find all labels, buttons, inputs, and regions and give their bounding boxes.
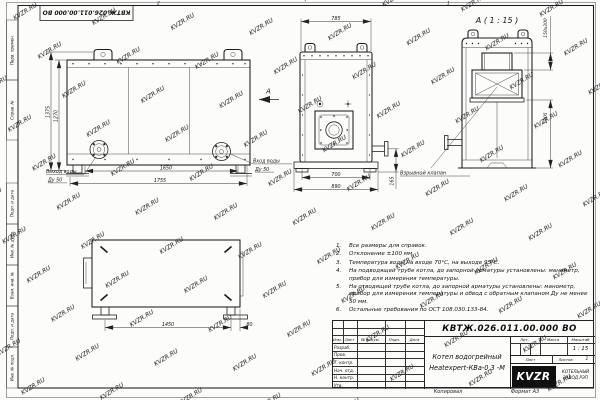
row-label-tkontr: Т. контр.	[334, 360, 353, 365]
note-number: 2.	[334, 251, 349, 258]
signature-table: Изм. Лист № докум. Подп. Дата Разраб. Пр…	[333, 321, 425, 389]
company-name: КОТЕЛЬНЫЙ ЗАВОД РЭП	[558, 369, 594, 381]
note-item: 6. Остальные требования по ОСТ 108.030.1…	[334, 307, 588, 314]
scale-value: 1 : 15	[567, 343, 595, 355]
margin-col-podp-data-1: Подп. и дата	[9, 189, 14, 217]
col-header-data: Дата	[405, 335, 425, 343]
scale-label: Масштаб	[567, 336, 595, 343]
margin-col-inv-dubl: Инв. № дубл.	[9, 231, 14, 258]
top-stamp-text: КВТЖ.026.011.00.000 ВО	[43, 8, 131, 15]
note-number: 3.	[334, 260, 349, 267]
note-text: Все размеры для справок.	[349, 243, 427, 250]
sheets-value: 1	[580, 355, 595, 363]
margin-col-vzam-inv: Взам. инв. №	[9, 272, 14, 299]
dim-side-width-top: 785	[331, 16, 340, 22]
margin-col-perv-primen: Перв. примен.	[9, 35, 14, 65]
mass-label: Масса	[540, 336, 567, 343]
row-label-utv: Утв.	[334, 383, 343, 388]
row-label-nachotd: Нач. отд.	[334, 368, 354, 373]
note-number: 1.	[334, 243, 349, 250]
dim-front-width-body: 1650	[160, 166, 172, 172]
company-name-line2: ЗАВОД РЭП	[558, 375, 594, 381]
note-number: 4.	[334, 268, 349, 283]
notes-list: 1. Все размеры для справок. 2. Отклонени…	[334, 243, 588, 315]
dim-front-height-total: 1375	[46, 106, 52, 118]
dim-side-width-total: 890	[331, 184, 340, 190]
note-text: Температура воды на входе 70°С, на выход…	[349, 260, 500, 267]
note-item: 3. Температура воды на входе 70°С, на вы…	[334, 260, 588, 267]
note-text: На подводящей трубе котла, до запорной а…	[349, 268, 588, 283]
zone-digit-right: 1	[447, 1, 450, 7]
doc-number: КВТЖ.026.011.00.000 ВО	[425, 321, 595, 337]
dim-detail-valve: 150х300	[543, 18, 549, 38]
margin-col-podp-data-2: Подп. и дата	[9, 312, 14, 340]
note-item: 1. Все размеры для справок.	[334, 243, 588, 250]
zone-digit-left: 2	[157, 1, 160, 7]
kvzr-logo: KVZR	[512, 366, 556, 387]
dim-front-height-body: 1270	[54, 110, 60, 122]
explosion-valve-callout: Взрывной клапан	[400, 171, 447, 177]
copied-label: Копировал	[418, 389, 478, 395]
col-header-doc: № докум.	[357, 335, 385, 343]
dim-top-length: 1450	[162, 322, 174, 328]
margin-col-inv-podl: Инв. № подл.	[9, 354, 14, 382]
dim-side-width-base: 700	[331, 172, 340, 178]
col-header-list: Лист	[343, 335, 357, 343]
title-block: Изм. Лист № докум. Подп. Дата Разраб. Пр…	[332, 320, 594, 388]
note-text: На отводящей трубе котла, до запорной ар…	[349, 284, 588, 306]
dim-top-offset: 80	[247, 322, 253, 328]
outlet-label-line1: Выход воды	[46, 169, 77, 175]
col-header-podp: Подп.	[385, 335, 405, 343]
note-number: 5.	[334, 284, 349, 306]
note-text: Отклонение ±100 мм.	[349, 251, 414, 258]
row-label-nkontr: Н. контр.	[334, 375, 354, 380]
note-number: 6.	[334, 307, 349, 314]
note-item: 4. На подводящей трубе котла, до запорно…	[334, 268, 588, 283]
detail-view-title: А ( 1 : 15 )	[475, 16, 518, 25]
row-label-prov: Пров.	[334, 352, 346, 357]
note-item: 2. Отклонение ±100 мм.	[334, 251, 588, 258]
product-name-line1: Котел водогрейный	[432, 352, 501, 362]
note-item: 5. На отводящей трубе котла, до запорной…	[334, 284, 588, 306]
product-name-line2: Heatexpert-КВа-0,3 -М	[429, 363, 505, 373]
row-label-razrab: Разраб.	[334, 345, 350, 350]
format-label: Формат А3	[497, 389, 553, 395]
drawing-sheet: KVZR.RU .thick{stroke:#1c1c1c;stroke-wid…	[0, 0, 600, 400]
col-header-izm: Изм.	[333, 335, 343, 343]
sheet-label: Лист	[510, 355, 552, 363]
lit-label: Лит.	[510, 336, 540, 343]
margin-col-sprav: Справ. №	[9, 100, 14, 119]
dim-side-stub-height: 165	[390, 176, 396, 185]
dim-front-width-total: 1755	[154, 178, 166, 184]
sheets-label: Листов	[552, 355, 580, 363]
dim-detail-height: 1005	[543, 112, 549, 123]
product-name: Котел водогрейный Heatexpert-КВа-0,3 -М	[425, 336, 511, 389]
info-panel: Лит. Масса Масштаб 1 : 15 Лист Листов 1 …	[510, 336, 595, 389]
note-text: Остальные требования по ОСТ 108.030.133-…	[349, 307, 488, 314]
view-arrow-label: А	[265, 88, 271, 96]
